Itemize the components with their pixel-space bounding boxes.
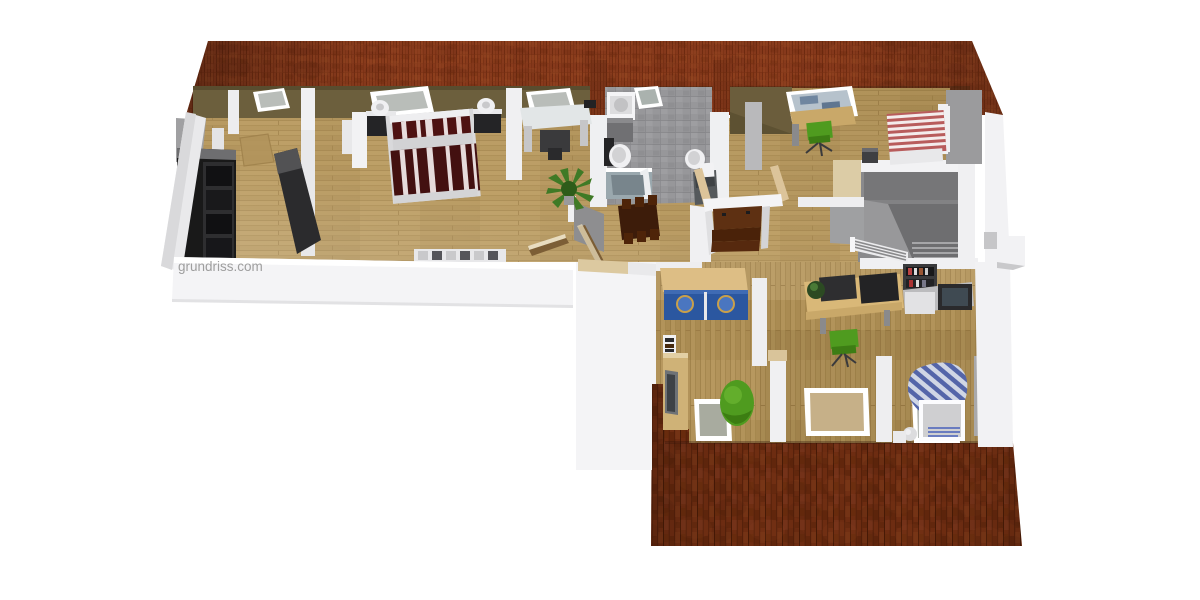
svg-text:grundriss.com: grundriss.com [178, 259, 263, 274]
